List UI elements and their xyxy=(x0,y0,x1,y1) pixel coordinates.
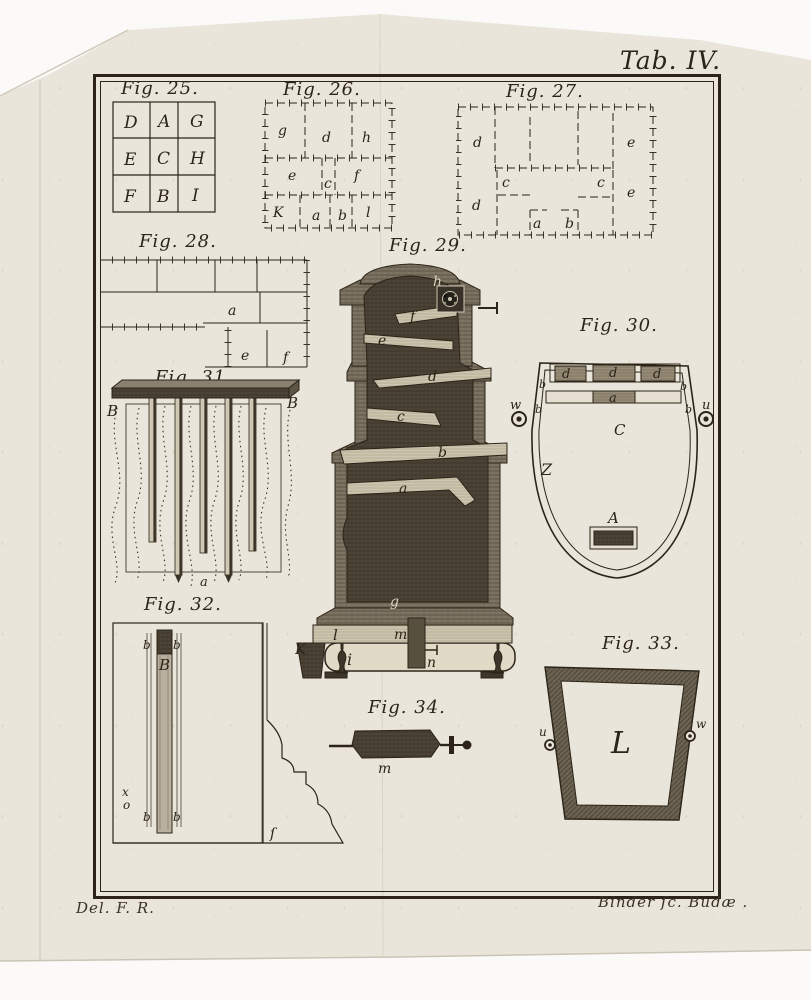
label-l: l xyxy=(366,205,370,221)
cornice-profile-line xyxy=(113,720,343,843)
label-d: d xyxy=(428,369,437,385)
label-g: g xyxy=(390,594,399,610)
plate-title: Tab. IV. xyxy=(620,46,721,75)
fig30-caption: Fig. 30. xyxy=(580,315,658,336)
handle-knob xyxy=(463,741,472,750)
label-b: b xyxy=(565,216,574,232)
grate-top-bar xyxy=(112,380,299,398)
damper-plate xyxy=(352,730,440,758)
label-c: c xyxy=(324,176,332,192)
label-E: E xyxy=(123,150,137,170)
fig28-brickwork-diagram: a e f xyxy=(95,248,310,370)
fig34-damper-spindle: m xyxy=(325,715,480,777)
label-B: B xyxy=(156,187,170,207)
credit-engraver: Binder ſc. Budæ . xyxy=(598,893,748,911)
label-F: F xyxy=(123,187,137,207)
stove-pillar xyxy=(408,618,425,668)
label-c: c xyxy=(502,175,510,191)
fig31-rod-grate: B B a xyxy=(103,378,303,590)
credit-draughtsman: Del. F. R. xyxy=(76,899,155,917)
rosette-vent-icon xyxy=(443,292,458,307)
label-C: C xyxy=(614,421,626,439)
label-a: a xyxy=(312,208,320,224)
label-A: A xyxy=(606,509,619,527)
fig33-door-frame: u w L xyxy=(538,660,713,828)
label-d: d xyxy=(609,366,617,381)
fig27-plan-diagram: d e c c e d a b xyxy=(456,103,658,241)
fig27-caption: Fig. 27. xyxy=(506,81,584,102)
label-H: H xyxy=(189,149,206,169)
label-A: A xyxy=(156,112,170,132)
label-b: b xyxy=(338,208,347,224)
label-a: a xyxy=(228,303,236,319)
label-e: e xyxy=(288,168,296,184)
label-w: w xyxy=(510,398,521,413)
label-d: d xyxy=(322,130,331,146)
label-b: b xyxy=(173,810,181,824)
label-long-s: ſ xyxy=(269,826,278,842)
label-f: f xyxy=(353,168,362,184)
label-b: b xyxy=(685,403,692,416)
label-b: b xyxy=(143,638,151,652)
fig33-caption: Fig. 33. xyxy=(602,633,680,654)
label-a: a xyxy=(533,216,541,232)
label-m: m xyxy=(394,627,407,643)
label-B-left: B xyxy=(106,402,118,420)
label-d: d xyxy=(473,135,482,151)
label-B-right: B xyxy=(286,394,298,412)
label-u: u xyxy=(539,725,547,739)
fig26-caption: Fig. 26. xyxy=(283,79,361,100)
fig26-plan-diagram: g d h e c f K a b l xyxy=(262,98,397,233)
label-d: d xyxy=(562,367,570,382)
label-n: n xyxy=(427,655,436,671)
label-b: b xyxy=(680,380,687,393)
handle-guard xyxy=(449,736,454,754)
label-c: c xyxy=(397,409,405,425)
damper-rod xyxy=(478,302,497,314)
label-u: u xyxy=(702,398,710,413)
label-D: D xyxy=(123,113,138,133)
label-f: f xyxy=(282,350,291,366)
label-a: a xyxy=(200,575,208,590)
label-o: o xyxy=(123,798,130,812)
label-K: K xyxy=(272,205,285,221)
label-e: e xyxy=(627,135,635,151)
fig25-caption: Fig. 25. xyxy=(121,78,199,99)
grate-rods xyxy=(149,392,256,583)
pivot-ring-right xyxy=(699,412,713,426)
label-d: d xyxy=(653,367,661,382)
label-b: b xyxy=(143,810,151,824)
label-L: L xyxy=(610,726,631,761)
label-g: g xyxy=(278,123,287,139)
label-x: x xyxy=(122,785,129,799)
fig25-letter-grid: D A G E C H F B I xyxy=(111,98,229,218)
label-a: a xyxy=(399,481,407,497)
label-w: w xyxy=(696,717,707,731)
label-e: e xyxy=(378,333,386,349)
label-C: C xyxy=(157,149,170,169)
label-e: e xyxy=(627,185,635,201)
pivot-ring-left xyxy=(512,412,526,426)
label-Z: Z xyxy=(540,460,553,479)
label-b: b xyxy=(438,445,447,461)
fig32-wall-section: b b b b B x o ſ xyxy=(110,600,355,852)
label-b: b xyxy=(535,403,542,416)
label-d: d xyxy=(472,198,481,214)
label-b: b xyxy=(539,378,546,391)
label-G: G xyxy=(190,112,204,132)
pivot-ring-left xyxy=(545,740,555,750)
label-a: a xyxy=(609,391,617,406)
label-I: I xyxy=(191,186,199,206)
label-h: h xyxy=(362,130,371,146)
fig30-plan-horseshoe: d d d b b b b a C Z A w u xyxy=(510,345,715,585)
label-m: m xyxy=(378,761,391,777)
label-B: B xyxy=(158,656,170,674)
pivot-ring-right xyxy=(685,731,695,741)
label-e: e xyxy=(241,348,249,364)
label-c: c xyxy=(597,175,605,191)
label-h: h xyxy=(433,274,442,290)
label-b: b xyxy=(173,638,181,652)
